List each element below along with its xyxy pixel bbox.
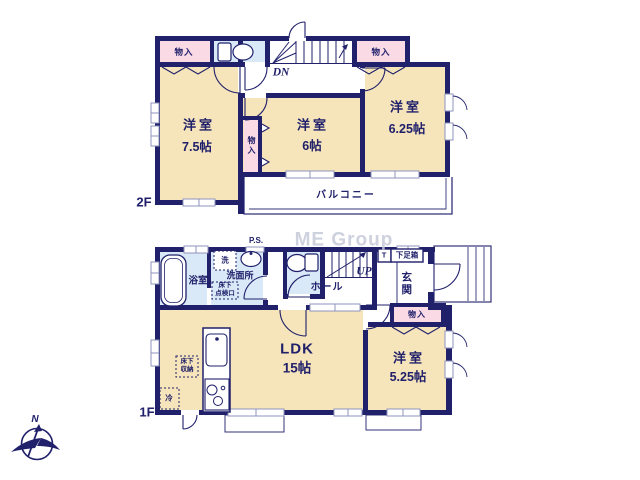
f2-floor-label: 2F: [136, 196, 151, 209]
f1-floor-storage-line1: 床下: [181, 358, 194, 366]
bathtub-icon: [161, 255, 186, 306]
f2-room-west-size: 7.5帖: [182, 141, 212, 154]
f2-room-center-size: 6帖: [302, 140, 321, 153]
f1-entrance-label: 玄関: [401, 272, 412, 297]
f1-refrigerator-label: 冷: [165, 394, 173, 402]
floor1-door-gaps: [181, 410, 199, 415]
vanity-sink-icon: [241, 252, 261, 267]
f1-hall-label: ホール: [311, 283, 344, 293]
f1-floor-hatch-line1: 床下: [215, 282, 235, 290]
f1-ldk-name: LDK: [280, 342, 314, 357]
floor1-toilet-icon: [287, 254, 318, 272]
f1-floor-hatch-label: 床下 点検口: [215, 282, 235, 298]
f2-closet-middle-label: 物入: [247, 136, 255, 156]
f1-laundry-label: 洗: [221, 256, 229, 264]
f1-toilet-mark-label: T: [382, 251, 387, 259]
f2-room-east-name: 洋室: [390, 101, 422, 114]
f1-washroom-label: 洗面所: [226, 272, 253, 281]
f2-closet-top-left-label: 物入: [174, 48, 193, 57]
compass-north-label: N: [31, 415, 38, 425]
f1-shoe-cabinet-label: 下足箱: [396, 251, 419, 259]
f1-floor-storage-line2: 収納: [181, 366, 194, 374]
floor1-casement-arcs: [453, 333, 467, 377]
f2-room-west-name: 洋室: [183, 119, 215, 132]
f2-balcony-label: バルコニー: [316, 191, 376, 201]
f1-floor-storage-label: 床下 収納: [181, 358, 194, 374]
f1-floor-hatch-line2: 点検口: [215, 290, 235, 298]
f2-stairs-dn-label: DN: [273, 67, 290, 79]
floorplan-page: ME Group 物入 物入 DN 洋室 7.5帖 物入 洋室 6帖 洋室 6.…: [0, 0, 640, 480]
f1-ldk-size: 15帖: [283, 361, 312, 375]
f1-closet-label: 物入: [408, 311, 426, 319]
f1-pipe-space-label: P.S.: [249, 237, 263, 245]
f2-room-center-name: 洋室: [297, 119, 329, 132]
kitchen-icon: [203, 328, 230, 412]
floor2-stairs: [270, 41, 352, 64]
f1-floor-label: 1F: [139, 406, 154, 419]
f1-bathroom-label: 浴室: [188, 276, 207, 286]
f1-room-east-name: 洋室: [393, 352, 425, 365]
watermark: ME Group: [295, 231, 394, 250]
f1-stairs-up-label: UP: [356, 266, 371, 278]
f2-room-east-size: 6.25帖: [389, 123, 426, 136]
compass-icon: [11, 424, 60, 460]
floor2-casement-arcs: [453, 96, 467, 139]
f1-room-east-size: 5.25帖: [390, 371, 427, 384]
f2-closet-top-right-label: 物入: [371, 48, 390, 57]
